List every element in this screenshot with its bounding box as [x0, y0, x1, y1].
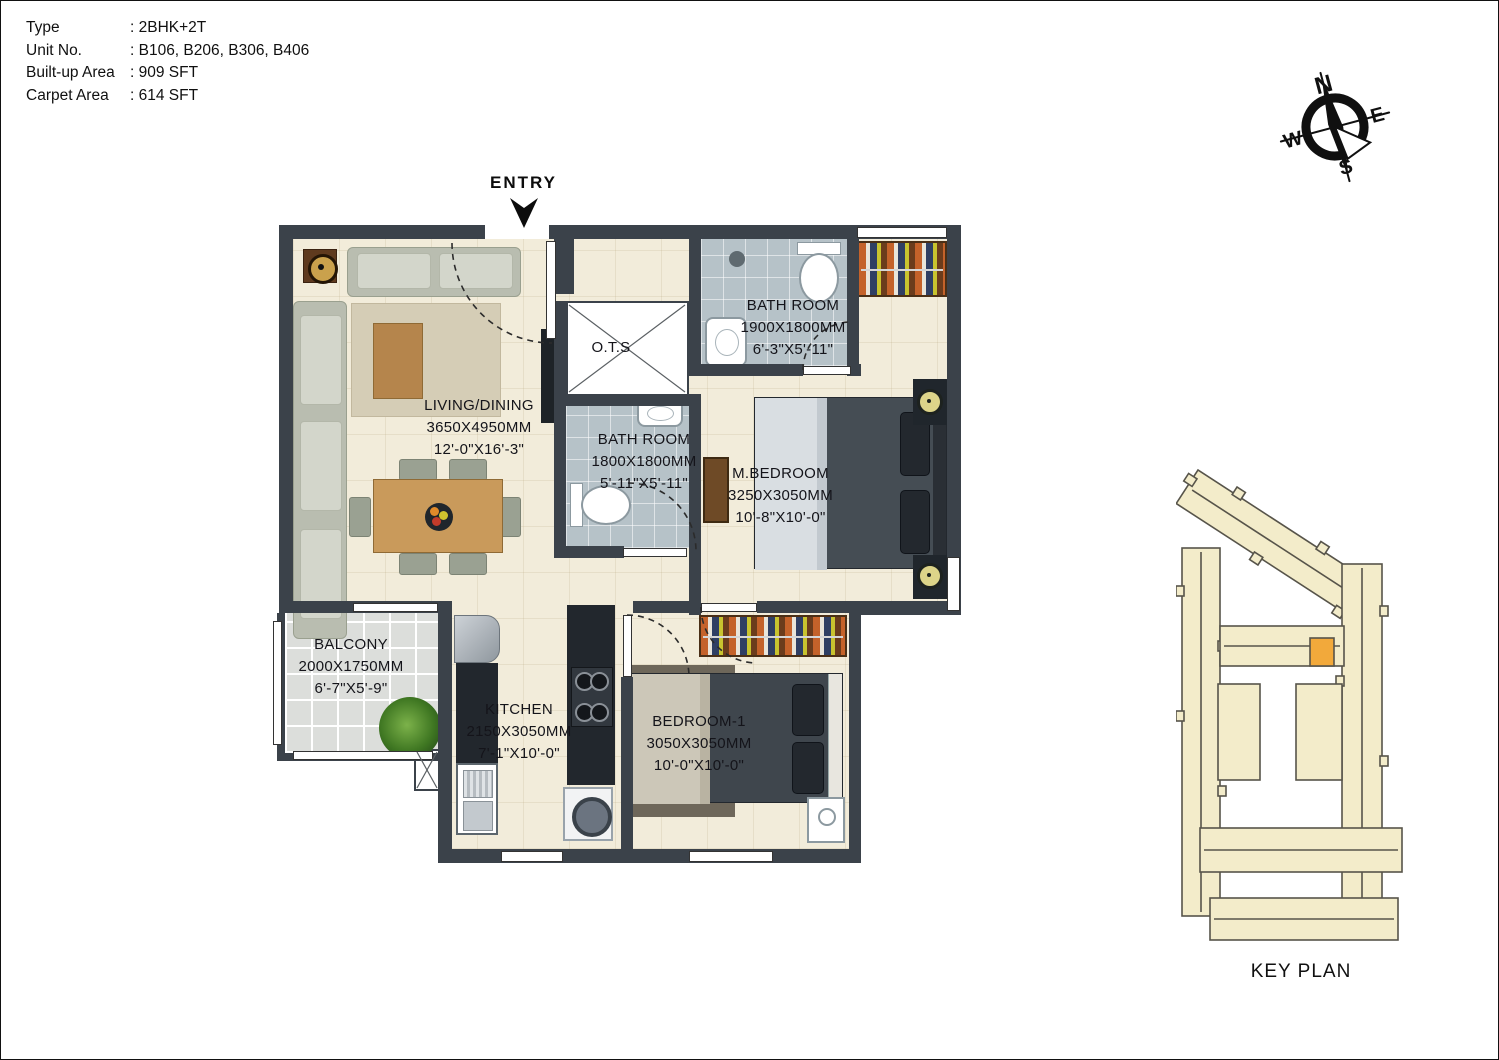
info-label: Type: [26, 17, 130, 40]
entry-arrow-icon: [509, 197, 539, 229]
coffee-table: [373, 323, 423, 399]
key-plan-label: KEY PLAN: [1211, 961, 1391, 983]
wardrobe: [699, 615, 847, 657]
info-label: Unit No.: [26, 40, 130, 63]
door-leaf: [701, 603, 757, 612]
side-table: [807, 797, 845, 843]
wall-segment: [689, 364, 803, 376]
door-leaf: [546, 241, 556, 339]
dining-table: [373, 479, 503, 553]
wall-segment: [757, 601, 857, 613]
window: [501, 851, 563, 862]
exterior-cutout: [861, 615, 947, 849]
kitchen-sink: [456, 763, 498, 835]
compass-south-label: S: [1337, 155, 1356, 180]
compass-icon: N E W S: [1273, 63, 1397, 187]
living-dining-label: LIVING/DINING 3650X4950MM 12'-0"X16'-3": [379, 395, 579, 461]
washing-machine: [563, 787, 613, 841]
window: [947, 557, 960, 611]
info-value: : 614 SFT: [130, 85, 309, 108]
wall-segment: [279, 225, 293, 613]
sliding-door: [353, 603, 438, 612]
info-value: : 909 SFT: [130, 62, 309, 85]
shower-icon: [729, 251, 745, 267]
bedroom1-label: BEDROOM-1 3050X3050MM 10'-0"X10'-0": [609, 711, 789, 777]
master-bedroom-label: M.BEDROOM 3250X3050MM 10'-8"X10'-0": [693, 463, 868, 529]
wall-segment: [849, 601, 861, 863]
kitchen-label: KITCHEN 2150X3050MM 7'-1"X10'-0": [439, 699, 599, 765]
entry-label: ENTRY: [490, 173, 557, 193]
info-value: : 2BHK+2T: [130, 17, 309, 40]
door-leaf: [803, 366, 851, 375]
compass-north-label: N: [1312, 70, 1336, 101]
door-leaf: [623, 548, 687, 557]
door-leaf: [623, 615, 632, 677]
compass-west-label: W: [1281, 127, 1305, 153]
wardrobe: [857, 241, 947, 297]
ots-label: O.T.S: [561, 337, 661, 359]
refrigerator: [454, 615, 500, 663]
balcony-label: BALCONY 2000X1750MM 6'-7"X5'-9": [281, 634, 421, 700]
info-label: Built-up Area: [26, 62, 130, 85]
key-plan-map: [1176, 456, 1426, 956]
decor-table: [303, 249, 337, 283]
window: [689, 851, 773, 862]
unit-info-block: Type : 2BHK+2T Unit No. : B106, B206, B3…: [26, 17, 309, 107]
wall-segment: [849, 601, 961, 615]
plant: [379, 697, 441, 759]
floor-plan-sheet: Type : 2BHK+2T Unit No. : B106, B206, B3…: [0, 0, 1499, 1060]
exterior-cutout: [271, 761, 438, 871]
bath-top-label: BATH ROOM 1900X1800MM 6'-3"X5'-11": [713, 295, 873, 361]
wall-segment: [554, 546, 624, 558]
window: [857, 227, 947, 238]
info-value: : B106, B206, B306, B406: [130, 40, 309, 63]
key-plan-highlight-unit: [1310, 638, 1334, 666]
wall-segment: [279, 225, 485, 239]
wall-segment: [554, 239, 574, 294]
compass-east-label: E: [1368, 103, 1387, 128]
window: [293, 751, 433, 760]
wall-segment: [689, 239, 701, 376]
info-label: Carpet Area: [26, 85, 130, 108]
